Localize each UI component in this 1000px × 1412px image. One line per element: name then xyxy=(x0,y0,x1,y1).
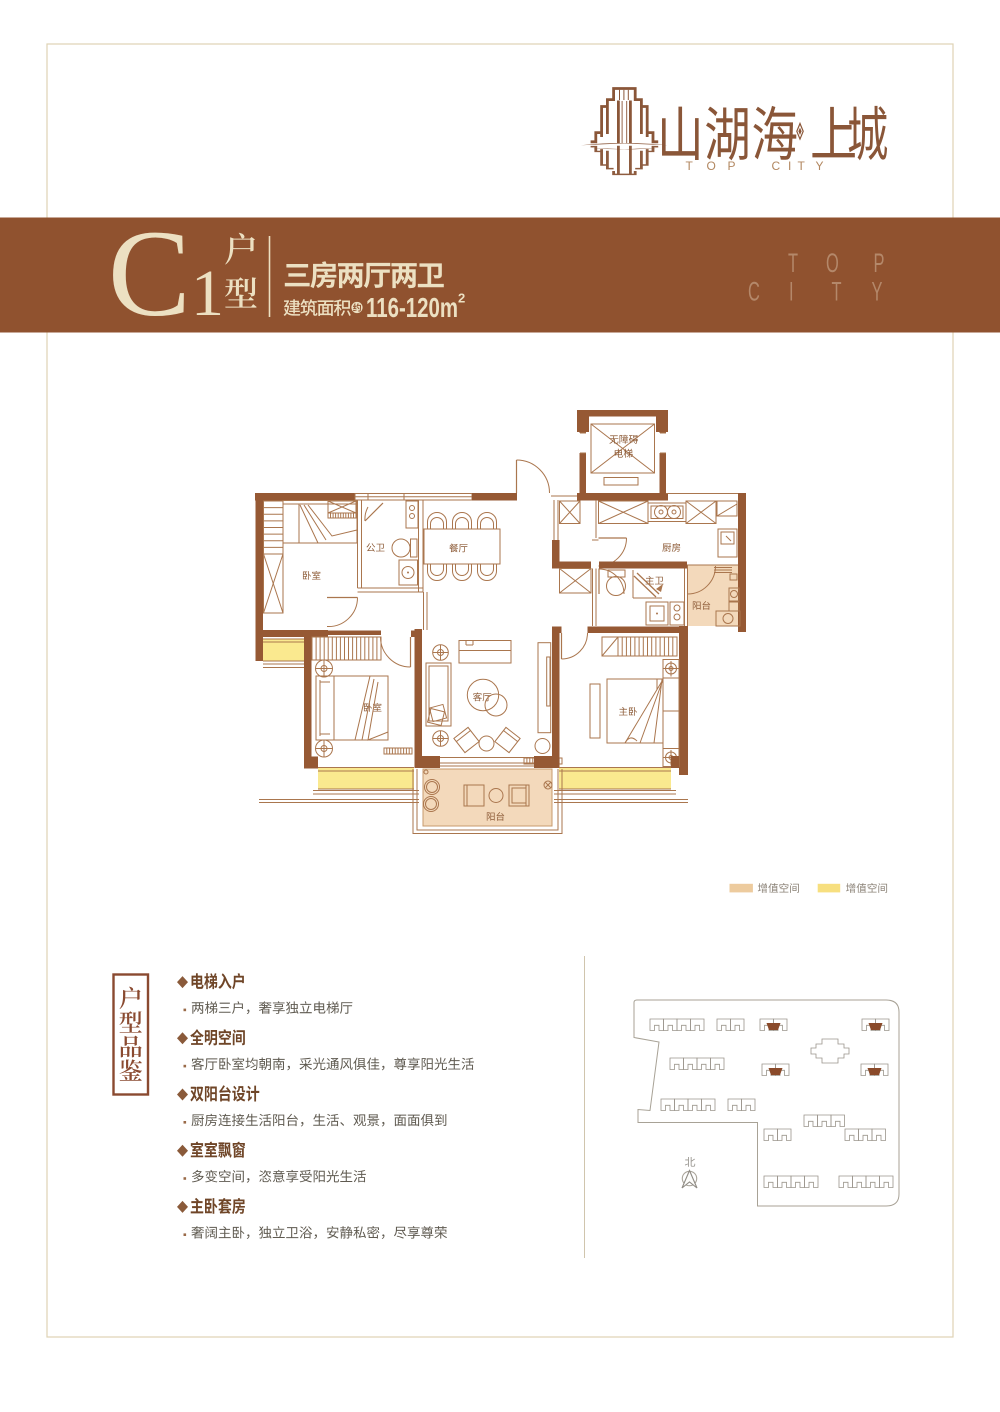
svg-text:T: T xyxy=(832,276,842,306)
svg-text:Y: Y xyxy=(816,159,824,173)
svg-text:C: C xyxy=(748,276,760,306)
svg-text:I: I xyxy=(789,276,794,306)
svg-text:T: T xyxy=(686,159,694,173)
svg-text:C: C xyxy=(108,205,191,342)
svg-text:P: P xyxy=(874,248,885,278)
svg-text:O: O xyxy=(826,248,839,278)
svg-text:I: I xyxy=(788,159,791,173)
svg-text:O: O xyxy=(707,159,716,173)
svg-text:116-120m: 116-120m xyxy=(366,292,458,323)
svg-text:T: T xyxy=(788,248,798,278)
svg-text:2: 2 xyxy=(458,291,465,306)
svg-text:C: C xyxy=(772,159,781,173)
svg-text:T: T xyxy=(798,159,806,173)
svg-text:1: 1 xyxy=(191,257,224,330)
svg-text:Y: Y xyxy=(872,276,883,306)
svg-text:P: P xyxy=(728,159,736,173)
